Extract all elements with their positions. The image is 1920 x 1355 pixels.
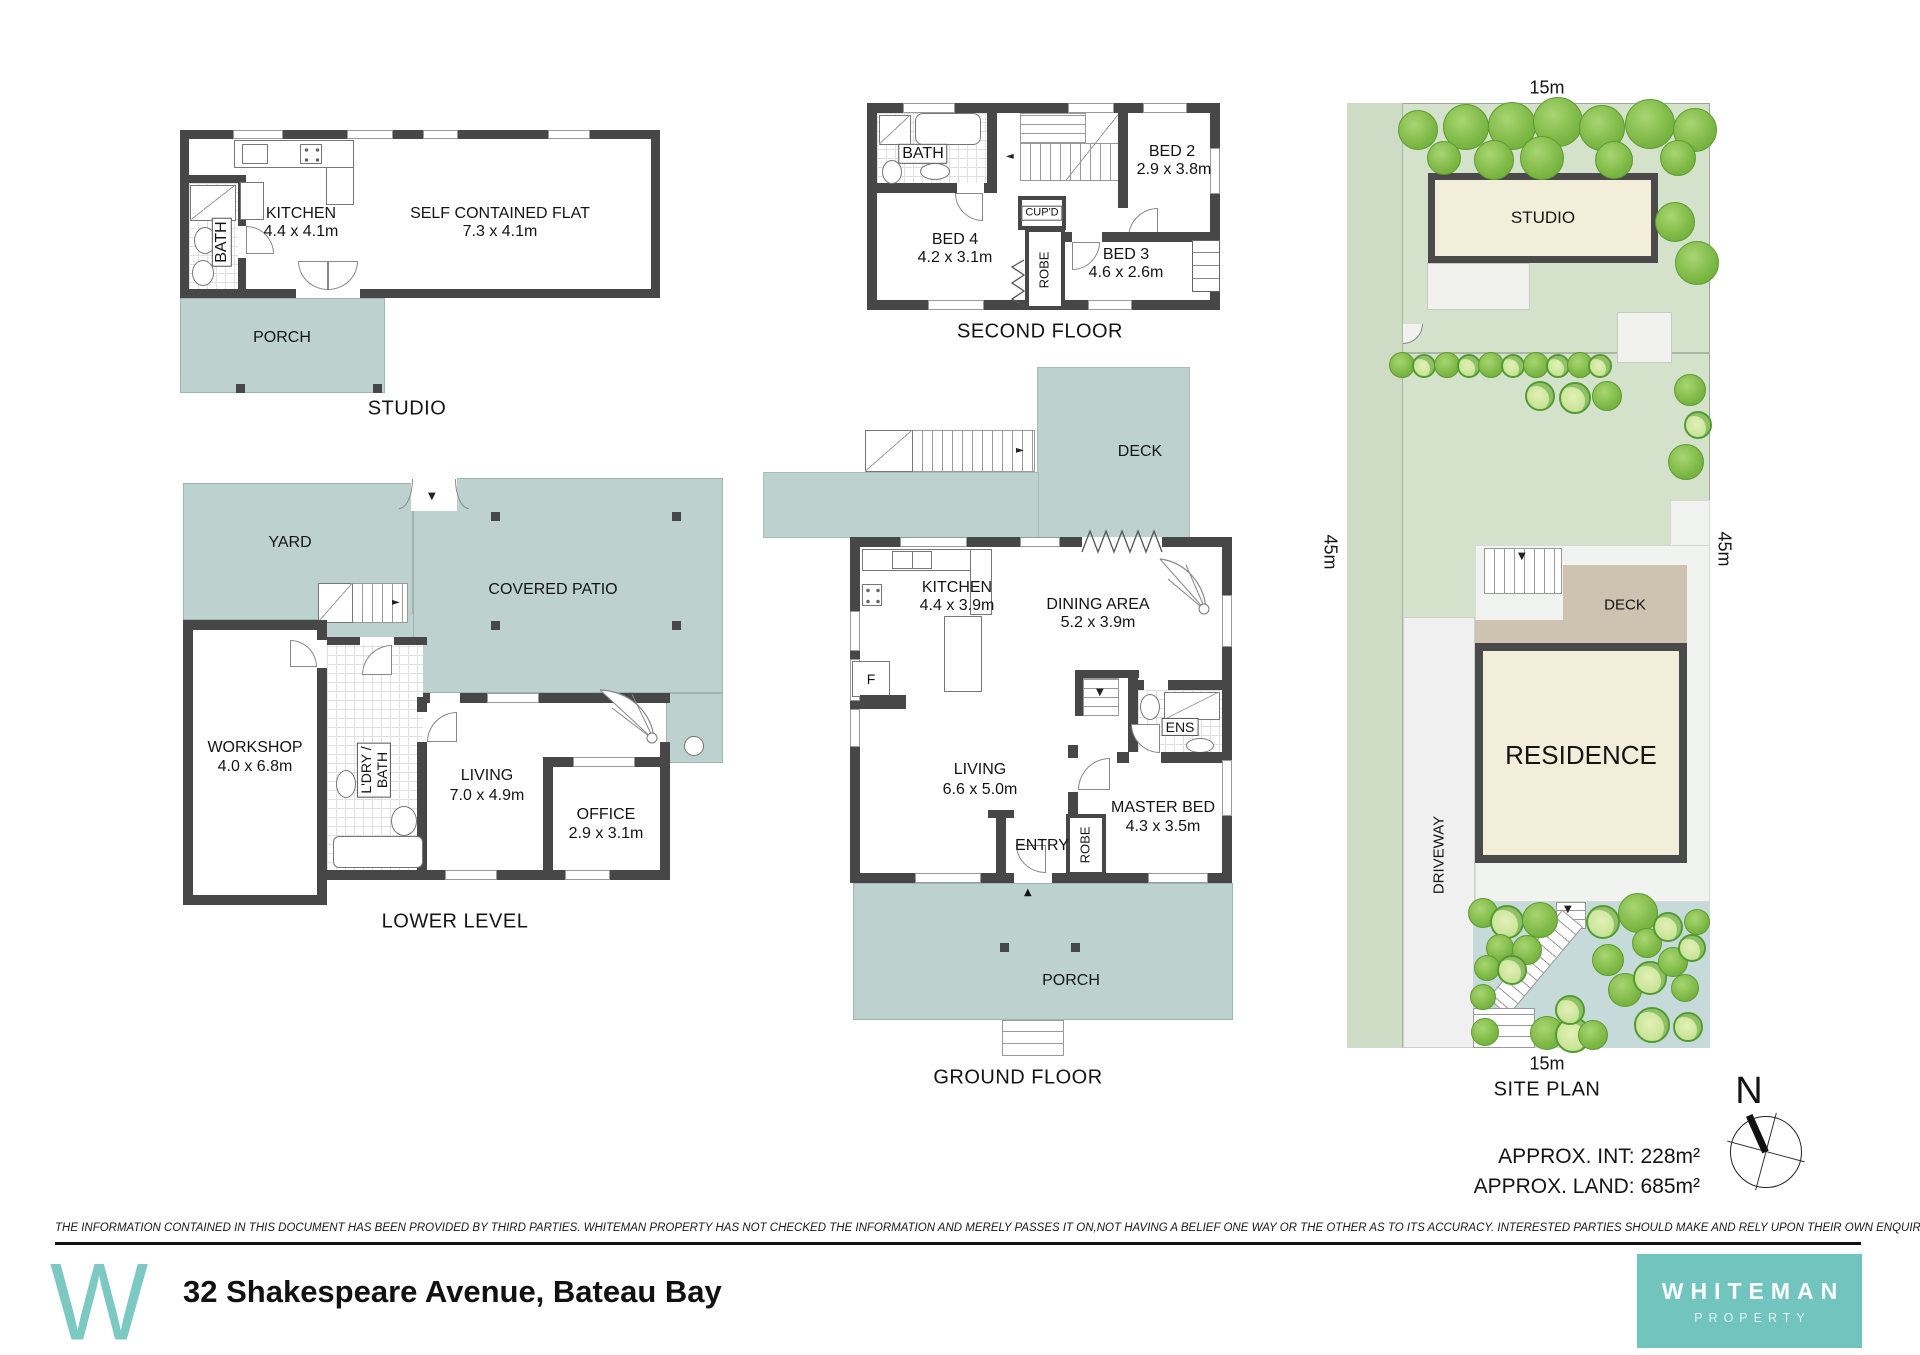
plan-caption-site-plan: SITE PLAN [1494, 1079, 1601, 1102]
room-label-robe2: ROBE [1038, 252, 1053, 289]
plan-caption-ground-floor: GROUND FLOOR [933, 1067, 1102, 1090]
wall [543, 757, 553, 870]
tree [1471, 1018, 1499, 1046]
room-label-bed2: BED 2 [1149, 143, 1195, 161]
room-label-porch: PORCH [253, 329, 311, 347]
window [1210, 148, 1220, 194]
wall [180, 175, 246, 183]
plan-caption-lower-level: LOWER LEVEL [382, 911, 529, 934]
window [565, 870, 610, 880]
window [347, 130, 393, 139]
tree [1555, 995, 1585, 1025]
shower-glass [190, 185, 236, 221]
tree [1522, 902, 1558, 938]
porch-steps [1002, 1020, 1064, 1056]
window [1143, 103, 1187, 113]
tree [1684, 411, 1712, 439]
door-gap [296, 289, 360, 298]
room-label-dining: DINING AREA [1046, 596, 1149, 614]
room-label-ens: ENS [1162, 718, 1199, 736]
brand-name: WHITEMAN [1655, 1278, 1844, 1305]
window [928, 300, 984, 310]
fridge-label: F [867, 671, 876, 687]
door-arc [1078, 758, 1110, 790]
door-gap [1072, 232, 1102, 242]
tree [1588, 354, 1612, 378]
entry-arrow: ▲ [1024, 888, 1032, 898]
wall [1118, 103, 1128, 208]
patio-post [672, 512, 681, 521]
wall [984, 183, 997, 193]
cabinet [240, 182, 264, 220]
floorplan-document: BATH KITCHEN 4.4 x 4.1m SELF CONTAINED F… [0, 0, 1920, 1355]
tree [1595, 141, 1633, 179]
tree [1398, 110, 1438, 150]
door-gap [1129, 752, 1161, 763]
plan-caption-studio: STUDIO [368, 398, 447, 421]
closet [1192, 240, 1220, 292]
wall [996, 816, 1006, 873]
basin [920, 163, 950, 180]
window [1148, 873, 1208, 883]
shed-block [1617, 312, 1672, 363]
tree [1653, 912, 1683, 942]
window [1222, 760, 1232, 816]
toilet [391, 806, 417, 836]
side-strip [1347, 103, 1403, 1048]
tree [1592, 381, 1622, 411]
tree [1470, 984, 1496, 1010]
sink [892, 551, 932, 569]
wall [987, 103, 997, 193]
wall [1128, 680, 1224, 690]
room-label-bed3: BED 3 [1103, 246, 1149, 264]
hot-tub [684, 736, 704, 756]
door-arc [427, 712, 457, 742]
door-gap [430, 693, 460, 703]
tree [1678, 934, 1706, 962]
tree [1501, 354, 1525, 378]
disclaimer-text: THE INFORMATION CONTAINED IN THIS DOCUME… [55, 1222, 1865, 1234]
tree [1684, 909, 1710, 935]
door-arc [298, 261, 328, 290]
area-label-covered-patio: COVERED PATIO [488, 581, 617, 599]
porch-area-ground [853, 883, 1233, 1020]
area-summary: APPROX. INT: 228m² APPROX. LAND: 685m² [1380, 1142, 1700, 1203]
path-block [1670, 500, 1710, 546]
basin [1186, 738, 1214, 753]
wall [317, 630, 327, 905]
wall [1075, 670, 1083, 716]
room-label-cupd: CUP'D [1021, 206, 1062, 221]
dim-top: 15m [1529, 78, 1564, 99]
wall [860, 695, 906, 709]
arch-arrow: ▼ [428, 492, 436, 502]
patio-block [1427, 263, 1530, 310]
wall [1222, 537, 1232, 883]
window [1088, 300, 1132, 310]
site-label-studio: STUDIO [1511, 208, 1575, 228]
shower-glass [1164, 692, 1220, 720]
tree [1586, 905, 1620, 939]
kitchen-bench-return [326, 167, 354, 205]
tree [1668, 444, 1704, 480]
stair-diagonal [318, 583, 353, 623]
room-dims-flat: 7.3 x 4.1m [463, 223, 538, 241]
tree [1634, 1007, 1670, 1043]
basin [336, 770, 356, 798]
window [548, 130, 590, 139]
tree [1671, 974, 1699, 1002]
ldry-line2: BATH [374, 746, 390, 793]
window [233, 130, 283, 139]
toilet [1140, 694, 1160, 720]
window [850, 611, 860, 651]
stair-diagonal [1066, 113, 1120, 181]
area-label-yard: YARD [268, 534, 311, 552]
brand-box: WHITEMAN PROPERTY [1637, 1254, 1862, 1348]
room-dims-living-g: 6.6 x 5.0m [943, 781, 1018, 799]
wall [660, 742, 670, 880]
stair-diagonal [865, 430, 913, 472]
wall [651, 130, 660, 298]
window [850, 709, 860, 747]
room-label-bath: BATH [212, 217, 232, 266]
tree [1625, 99, 1675, 149]
wall [180, 130, 189, 298]
tree [1497, 955, 1527, 985]
tree [1592, 944, 1624, 976]
room-label-living-l: LIVING [461, 767, 513, 785]
room-dims-office: 2.9 x 3.1m [569, 825, 644, 843]
window [573, 757, 635, 767]
wall [238, 258, 246, 298]
sink [242, 144, 268, 164]
ldry-line1: L'DRY / [358, 746, 374, 793]
wall [180, 289, 660, 298]
agency-logo: W [50, 1248, 148, 1355]
stair-direction-arrow: ◄ [1006, 152, 1014, 162]
site-label-deck: DECK [1604, 596, 1646, 613]
deck-walkway [763, 472, 1039, 538]
door-gap [360, 637, 394, 645]
room-dims-living-l: 7.0 x 4.9m [450, 787, 525, 805]
wall [867, 183, 957, 193]
door-arc [955, 193, 983, 221]
tree [1559, 382, 1591, 414]
room-dims-bed3: 4.6 x 2.6m [1089, 264, 1164, 282]
room-label-kitchen: KITCHEN [266, 205, 336, 223]
room-label-robe-ground: ROBE [1079, 827, 1094, 864]
deck-area [1037, 367, 1190, 538]
tree [1412, 354, 1436, 378]
bifold-door-zigzag [1010, 260, 1026, 306]
bathtub [333, 836, 423, 868]
stair-down-arrow: ▼ [1096, 688, 1104, 698]
wall [1128, 678, 1138, 762]
porch-post [1071, 943, 1080, 952]
room-dims-kitchen: 4.4 x 4.1m [264, 223, 339, 241]
room-dims-dining: 5.2 x 3.9m [1061, 614, 1136, 632]
window [1068, 103, 1114, 113]
door-gap [1014, 873, 1052, 883]
room-dims-bed4: 4.2 x 3.1m [918, 249, 993, 267]
wall [183, 895, 327, 905]
footer-divider [55, 1242, 1861, 1245]
property-address: 32 Shakespeare Avenue, Bateau Bay [183, 1274, 722, 1310]
tree [1655, 202, 1695, 242]
cooktop [300, 144, 322, 164]
door-gap [317, 640, 327, 668]
window [1222, 595, 1232, 647]
stair-direction-arrow: ► [1016, 446, 1024, 456]
porch-post [236, 384, 245, 393]
patio-post [672, 621, 681, 630]
room-label-porch-g: PORCH [1042, 972, 1100, 990]
wall [867, 103, 877, 310]
tree [1427, 141, 1461, 175]
approx-int: APPROX. INT: 228m² [1380, 1142, 1700, 1172]
room-label-bed4: BED 4 [932, 231, 978, 249]
shower-glass [879, 115, 911, 145]
brand-subtitle: PROPERTY [1688, 1311, 1811, 1325]
room-dims-master: 4.3 x 3.5m [1126, 818, 1201, 836]
room-label-ldry-bath: L'DRY / BATH [357, 742, 391, 797]
spiral-stair [598, 688, 656, 742]
site-label-residence: RESIDENCE [1505, 741, 1657, 771]
tree [1675, 241, 1719, 285]
stair-direction-arrow: ► [392, 598, 400, 608]
cooktop [862, 584, 882, 606]
patio-post [491, 512, 500, 521]
bathtub [915, 113, 981, 145]
wall [183, 620, 327, 630]
island-bench [944, 616, 982, 692]
window [1020, 537, 1060, 547]
tree [1660, 140, 1696, 176]
room-dims-kitchen-g: 4.4 x 3.9m [920, 597, 995, 615]
room-label-master: MASTER BED [1111, 799, 1215, 817]
room-label-entry: ENTRY [1015, 837, 1069, 855]
site-stair-arrow: ▼ [1518, 552, 1526, 562]
bifold-zigzag-doors [1082, 528, 1162, 554]
tree [1525, 381, 1555, 411]
wall [988, 810, 1014, 818]
room-label-flat: SELF CONTAINED FLAT [410, 205, 590, 223]
plan-caption-second-floor: SECOND FLOOR [957, 321, 1123, 344]
compass-north-label: N [1735, 1070, 1762, 1114]
wall [1075, 670, 1139, 678]
wall [1068, 745, 1078, 758]
site-label-driveway: DRIVEWAY [1430, 816, 1447, 894]
room-label-living-g: LIVING [954, 761, 1006, 779]
room-label-bath2: BATH [898, 144, 947, 164]
dim-right: 45m [1714, 531, 1735, 566]
door-arc [328, 261, 358, 290]
room-label-kitchen-g: KITCHEN [922, 579, 992, 597]
room-label-workshop: WORKSHOP [207, 739, 302, 757]
room-label-office: OFFICE [577, 806, 636, 824]
dim-left: 45m [1320, 534, 1341, 569]
door-gap [1144, 680, 1168, 690]
room-label-deck: DECK [1118, 443, 1162, 461]
porch-post [1000, 943, 1009, 952]
room-dims-workshop: 4.0 x 6.8m [218, 758, 293, 776]
toilet [192, 260, 214, 286]
tree [1474, 140, 1514, 180]
site-deck-strip [1475, 620, 1563, 643]
tree [1520, 136, 1564, 180]
patio-post [491, 621, 500, 630]
tree [1578, 1020, 1608, 1050]
window [423, 130, 458, 139]
spiral-stair [1158, 557, 1208, 613]
room-dims-bed2: 2.9 x 3.8m [1137, 161, 1212, 179]
window [487, 693, 539, 703]
tree [1674, 374, 1706, 406]
window [900, 537, 967, 547]
window [445, 870, 497, 880]
window [903, 103, 955, 113]
dim-bottom: 15m [1529, 1054, 1564, 1075]
approx-land: APPROX. LAND: 685m² [1380, 1172, 1700, 1202]
tree [1618, 893, 1658, 933]
door-arc [290, 640, 317, 667]
window [915, 873, 981, 883]
tree [1673, 1012, 1703, 1042]
porch-post [373, 384, 382, 393]
wall [183, 620, 193, 905]
